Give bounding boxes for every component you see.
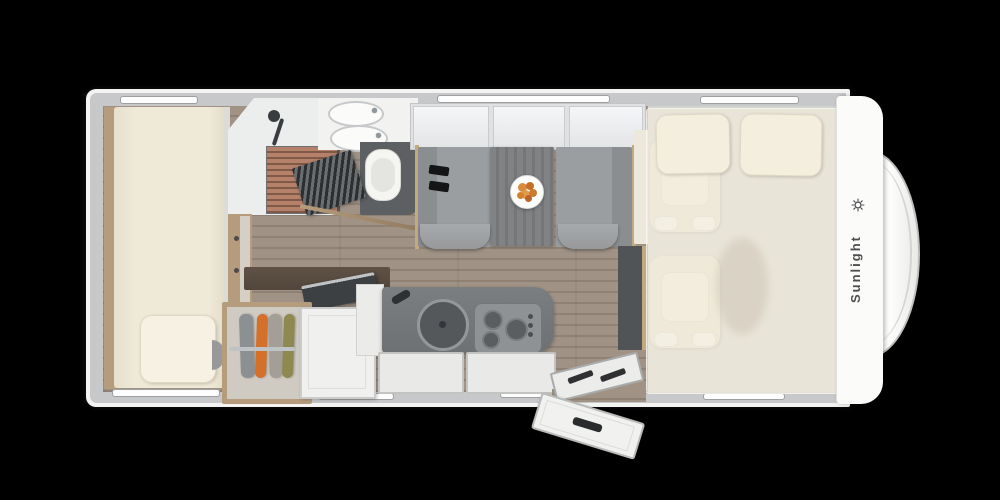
fruit-plate: [510, 175, 544, 209]
motorhome-floorplan: Sunlight: [0, 0, 1000, 500]
kitchen-drawer: [466, 352, 556, 394]
stove: [474, 303, 542, 354]
side-cabinet-dark: [618, 246, 644, 350]
step-tread: [567, 370, 593, 385]
bed-pillow: [140, 315, 216, 383]
stove-burner: [482, 331, 500, 349]
overhead-locker: [569, 106, 643, 148]
stove-burner: [505, 318, 528, 341]
toilet: [365, 149, 401, 201]
step-tread: [600, 368, 626, 383]
hinge-icon: [234, 236, 239, 241]
hinge-icon: [234, 268, 239, 273]
shower-fixture-icon: [268, 110, 280, 122]
stove-knob: [528, 323, 533, 328]
kitchen-drawer: [378, 352, 464, 394]
dropdown-bed-pillow-left: [655, 113, 730, 174]
tall-cabinet: [228, 214, 252, 306]
garment: [268, 314, 282, 378]
garment: [282, 314, 295, 378]
overhead-lockers: [410, 103, 646, 150]
window-strip: [437, 95, 610, 103]
seat-cushion: [558, 224, 618, 249]
tap-icon: [376, 133, 381, 138]
seat-cushion: [420, 224, 490, 249]
stove-burner: [483, 310, 503, 330]
sun-icon: [851, 198, 865, 212]
window-strip: [700, 96, 799, 104]
toilet-seat: [371, 158, 395, 192]
kitchen-side-cabinet: [356, 284, 384, 356]
window-strip: [703, 393, 785, 400]
drain-icon: [439, 321, 446, 328]
garment: [255, 314, 268, 378]
wardrobe-rail: [229, 347, 295, 351]
window-strip: [112, 389, 220, 397]
washbasin-1: [328, 101, 384, 127]
kitchen-sink: [417, 299, 469, 351]
overhead-locker: [493, 106, 565, 148]
brand-logo: Sunlight: [848, 214, 868, 324]
garment: [239, 314, 255, 378]
stove-knob: [528, 332, 533, 337]
stove-knob: [528, 314, 533, 319]
cabinet-interior: [240, 216, 250, 304]
window-strip: [120, 96, 198, 104]
tap-icon: [372, 108, 377, 113]
dropdown-bed-pillow-right: [739, 113, 822, 176]
door-panel-line: [539, 400, 635, 452]
overhead-locker: [413, 106, 489, 148]
